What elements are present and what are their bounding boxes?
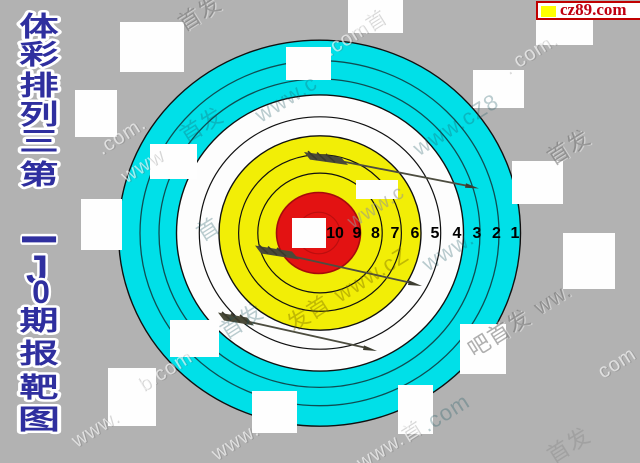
- svg-text:排: 排: [20, 71, 59, 101]
- svg-text:图: 图: [18, 405, 60, 435]
- svg-text:体: 体: [20, 12, 60, 42]
- svg-text:彩: 彩: [20, 40, 59, 70]
- svg-text:期: 期: [20, 306, 59, 336]
- svg-text:报: 报: [20, 339, 59, 369]
- svg-text:第: 第: [20, 159, 59, 190]
- svg-text:三: 三: [20, 127, 59, 157]
- svg-text:0: 0: [32, 274, 50, 310]
- svg-text:列: 列: [20, 100, 59, 130]
- svg-text:靶: 靶: [20, 373, 59, 403]
